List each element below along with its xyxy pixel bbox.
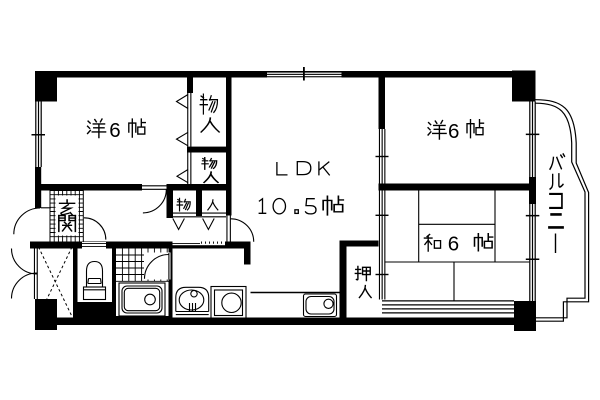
svg-text:6: 6 (448, 233, 459, 256)
svg-text:6: 6 (109, 119, 120, 142)
svg-text:6: 6 (448, 120, 459, 143)
